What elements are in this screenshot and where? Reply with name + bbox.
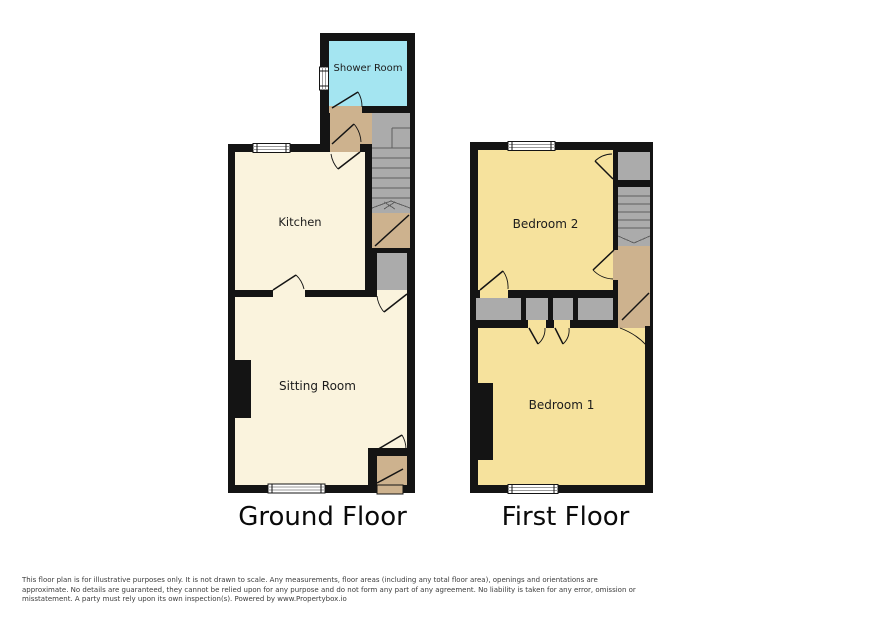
sitting-room-window (268, 484, 325, 493)
ground-floor-drawing (225, 28, 420, 498)
cupboard-area (377, 253, 407, 290)
first-floor-plan: Bedroom 2 Bedroom 1 (468, 138, 663, 498)
lobby-wall-top (368, 448, 407, 456)
kitchen-window (253, 144, 290, 153)
disclaimer-line-1: This floor plan is for illustrative purp… (22, 576, 862, 586)
cupboard2-opening (528, 320, 546, 328)
landing-area (618, 246, 650, 326)
bedroom1-area (478, 328, 645, 485)
disclaimer-line-3: misstatement. A party must rely upon its… (22, 595, 862, 605)
cupboard-row-2 (526, 298, 548, 320)
chimney-breast-first (470, 383, 493, 460)
bedroom1-window (508, 485, 558, 494)
first-floor-title: First Floor (468, 502, 663, 532)
cupboard-top-area (618, 152, 650, 180)
cupboard-row-3 (553, 298, 573, 320)
bedroom2-area (478, 150, 613, 290)
front-door-threshold (377, 485, 403, 494)
cupboard-row-1 (476, 298, 521, 320)
cupboard3-opening (554, 320, 570, 328)
kitchen-area (235, 152, 365, 290)
chimney-breast (228, 360, 251, 418)
bedroom2-cupboard-opening (480, 290, 508, 298)
bedroom1-door-opening (618, 320, 645, 328)
shower-room-window (320, 67, 329, 90)
ground-floor-title: Ground Floor (225, 502, 420, 532)
disclaimer-text: This floor plan is for illustrative purp… (22, 576, 862, 605)
cupboard-row-4 (578, 298, 613, 320)
disclaimer-line-2: approximate. No details are guaranteed, … (22, 586, 862, 596)
ground-floor-plan: Shower Room Kitchen Sitting Room (225, 28, 420, 498)
sitting-hall-opening (377, 290, 407, 297)
bedroom2-window (508, 142, 555, 151)
first-floor-drawing (468, 138, 663, 498)
kitchen-door-opening (330, 144, 360, 152)
shower-room-area (329, 41, 407, 106)
bedroom2-door-opening (613, 250, 618, 280)
kitchen-sitting-opening (273, 290, 305, 297)
